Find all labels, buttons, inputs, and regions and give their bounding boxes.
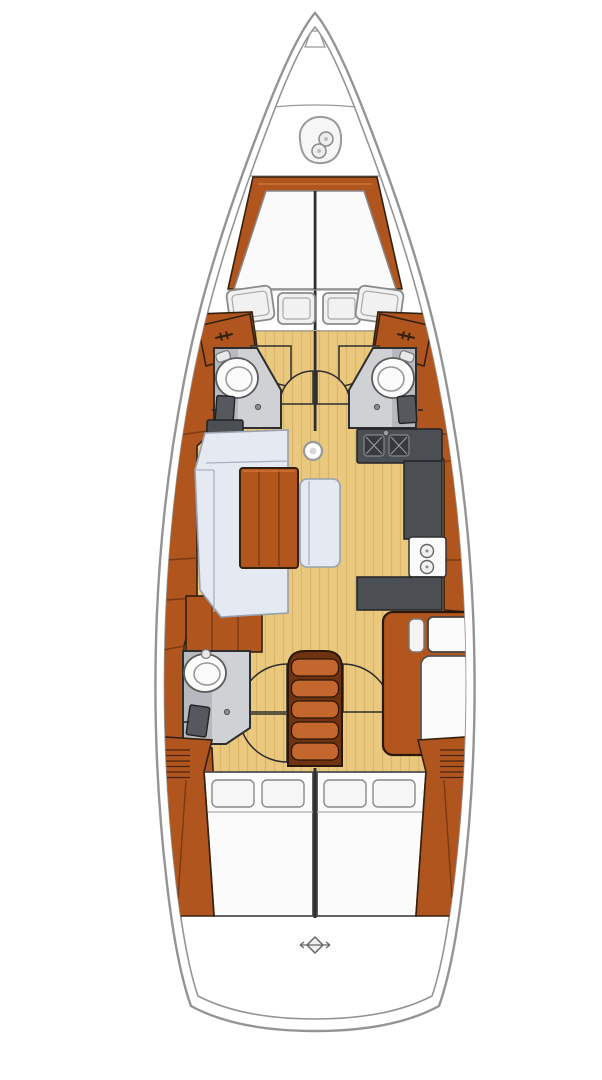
faucet <box>384 431 388 435</box>
aft-centerline-bulkhead <box>314 768 317 918</box>
salon-table <box>240 468 298 568</box>
nav-seat <box>409 619 424 652</box>
nav-station <box>383 612 475 755</box>
chart-table <box>428 617 470 652</box>
stove-burners-icon <box>409 537 446 577</box>
salon-bench <box>300 479 340 567</box>
mast-step <box>304 442 322 460</box>
sink-icon <box>364 435 384 456</box>
companionway-steps <box>288 651 342 766</box>
drain-dot <box>224 709 229 714</box>
aft-cabin-port-bed <box>204 772 313 916</box>
aft-head-port <box>183 650 250 745</box>
floor-plan <box>0 0 602 1080</box>
aft-cabin-starboard-bed <box>317 772 426 916</box>
boat-floor-plan-svg <box>0 0 602 1080</box>
forward-cabin-bulkhead <box>314 331 317 431</box>
drain-dot <box>255 404 260 409</box>
drain-dot <box>374 404 379 409</box>
anchor-windlass-icon <box>300 117 341 163</box>
sink-icon <box>389 435 409 456</box>
